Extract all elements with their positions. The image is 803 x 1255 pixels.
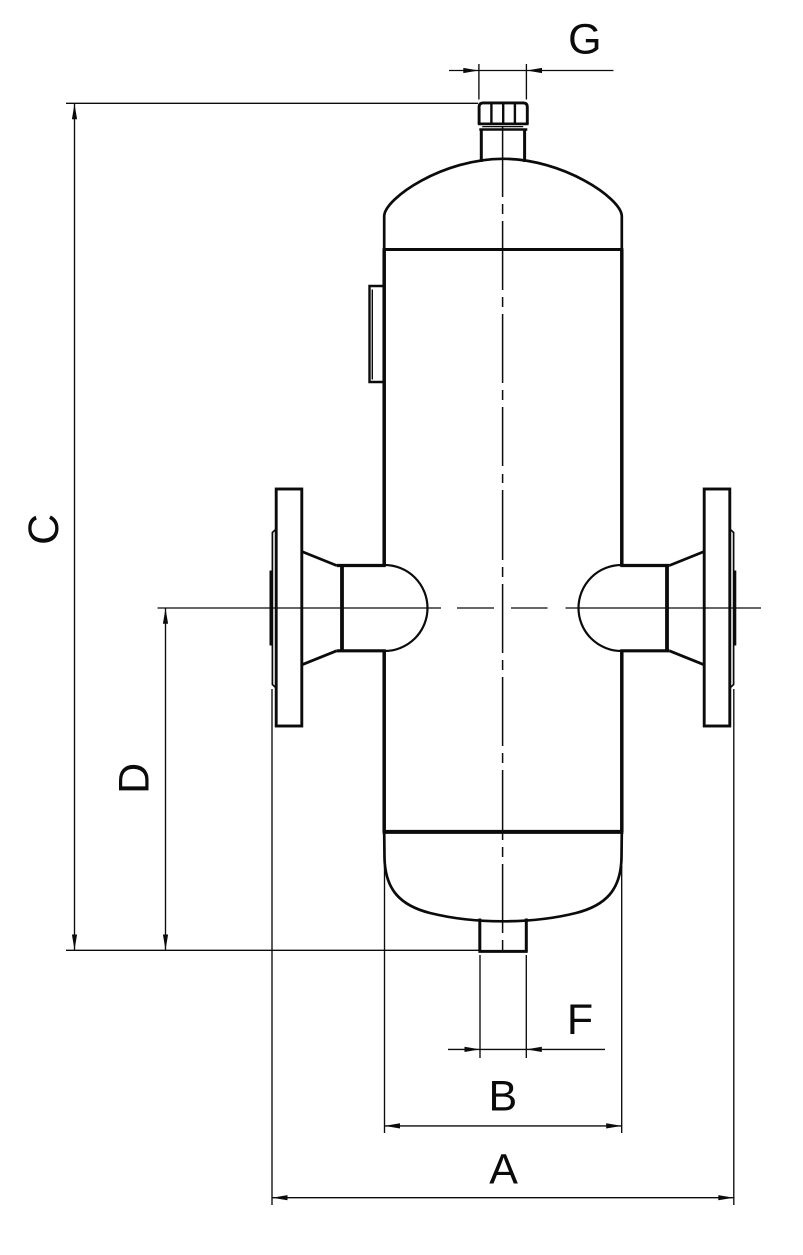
svg-text:B: B — [488, 1072, 517, 1120]
svg-text:C: C — [20, 514, 68, 545]
svg-text:G: G — [568, 16, 601, 64]
svg-text:F: F — [567, 996, 593, 1044]
svg-text:A: A — [489, 1146, 518, 1194]
svg-text:D: D — [111, 763, 159, 794]
